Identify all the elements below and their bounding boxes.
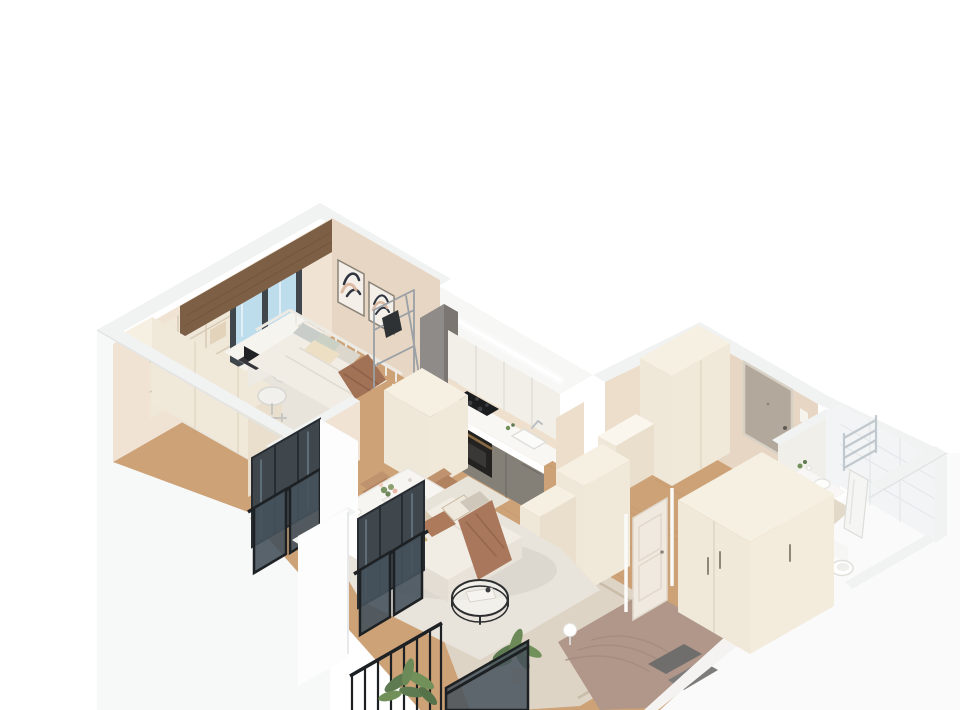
apartment-3d-scene bbox=[0, 0, 960, 710]
door-handle bbox=[660, 550, 664, 554]
desk-chair-seat bbox=[258, 387, 286, 405]
bedroom2-sphere-lamp bbox=[564, 624, 577, 637]
cooktop-burner-1 bbox=[468, 401, 473, 406]
bouquet-blush-1 bbox=[393, 489, 398, 494]
coffee-table-decor bbox=[486, 588, 491, 593]
bouquet-green-2 bbox=[388, 484, 394, 490]
entrance-door-peephole bbox=[767, 403, 770, 406]
cup-2 bbox=[408, 478, 412, 482]
cooktop-burner-4 bbox=[485, 403, 489, 407]
bouquet-blush-2 bbox=[379, 483, 383, 487]
toilet-seat bbox=[837, 563, 850, 571]
bouquet-green-3 bbox=[385, 491, 390, 496]
floorplan-render bbox=[0, 0, 960, 710]
counter-plant-sprig-2 bbox=[511, 423, 515, 427]
wall-band-bath-right bbox=[935, 455, 947, 543]
bath-flowers-1 bbox=[798, 464, 803, 469]
entrance-door-handle bbox=[783, 426, 787, 430]
bouquet-white bbox=[386, 481, 390, 485]
cooktop-burner-2 bbox=[478, 407, 483, 412]
cooktop-burner-3 bbox=[475, 397, 479, 401]
bath-vase bbox=[807, 466, 811, 470]
bath-flowers-2 bbox=[803, 460, 807, 464]
counter-plant-sprig bbox=[506, 426, 510, 430]
balcony-pier bbox=[298, 508, 348, 686]
